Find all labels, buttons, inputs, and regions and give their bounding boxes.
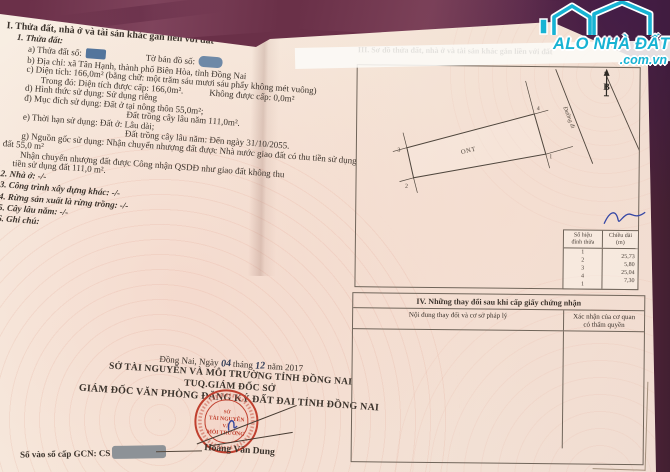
vertex-label: 2 [405, 184, 408, 190]
edge-length-table-body: 1 2 3 4 1 25,73 5,80 25,04 7,30 [563, 248, 637, 289]
watermark-domain-text: .com.vn [620, 53, 667, 67]
north-arrow-icon: B [603, 69, 610, 96]
houses-icon [532, 1, 662, 35]
right-page: III. Sơ đồ thửa đất, nhà ở và tài sản kh… [335, 40, 664, 472]
edge-length-table-header: Số hiệuđỉnh thửa Chiều dài(m) [564, 230, 638, 249]
edge-length: 7,30 [602, 277, 634, 285]
photo-background: I. Thửa đất, nhà ở và tài sản khác gắn l… [0, 0, 670, 472]
svg-text:SỞ: SỞ [223, 409, 230, 415]
handwritten-day: 04 [221, 359, 231, 369]
watermark-brand-text: ALO NHÀ ĐẤT [532, 35, 670, 54]
changes-col-confirmation: Xác nhận của cơ quan có thẩm quyền [564, 310, 644, 331]
road-label: Đường đi [561, 105, 575, 130]
watermark-logo: ALO NHÀ ĐẤT .com.vn [532, 1, 670, 71]
handwritten-check-mark [602, 206, 647, 228]
changes-col-content: Nội dung thay đổi và cơ sở pháp lý [353, 308, 564, 330]
north-label: B [603, 83, 610, 93]
handwritten-month: 12 [255, 361, 265, 371]
redaction-underline [156, 450, 202, 452]
road-edge-line [555, 69, 594, 163]
edge-length-table: Số hiệuđỉnh thửa Chiều dài(m) 1 2 3 4 1 … [562, 229, 639, 290]
vertex-number: 1 [563, 280, 601, 288]
changes-table-header: Nội dung thay đổi và cơ sở pháp lý Xác n… [353, 308, 644, 332]
vertex-label: 3 [397, 148, 400, 154]
parcel-outline [407, 113, 547, 179]
vertex-label: 4 [537, 106, 540, 112]
redaction-map-sheet-number [199, 56, 224, 69]
vertex-label: 1 [549, 154, 552, 160]
page-frame-corner [593, 380, 649, 471]
parcel-sketch-box: Đường đi 3 2 4 1 ONT [354, 64, 640, 290]
redaction-parcel-number [85, 48, 106, 59]
